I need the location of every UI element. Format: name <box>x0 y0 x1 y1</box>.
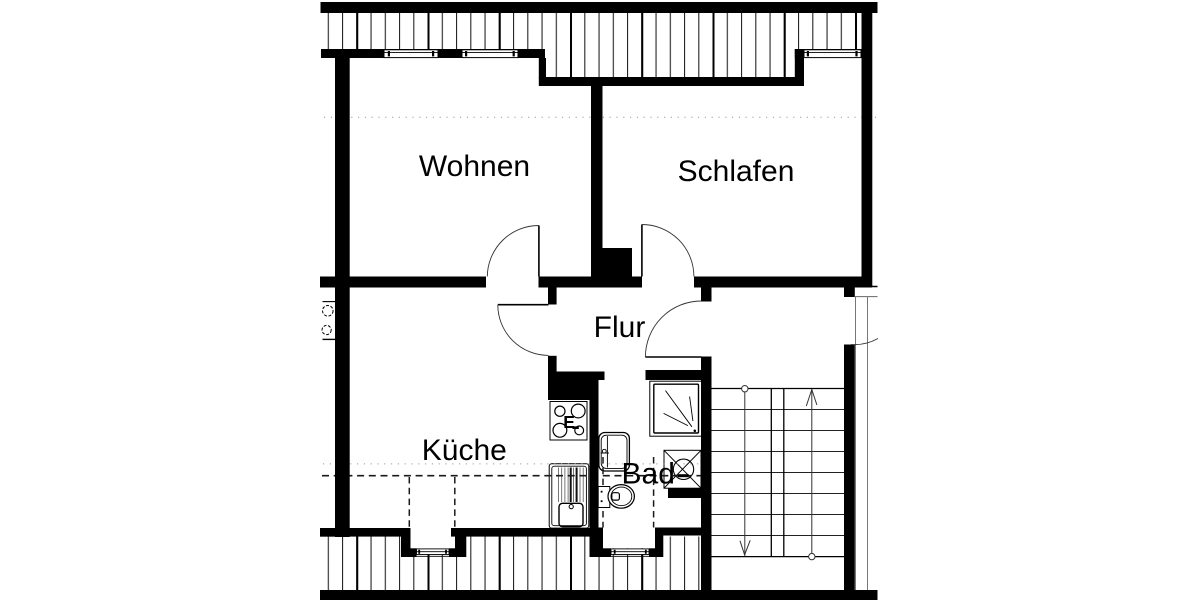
svg-text:Wohnen: Wohnen <box>419 150 530 183</box>
svg-text:E: E <box>563 412 575 432</box>
svg-text:Küche: Küche <box>422 434 507 467</box>
svg-text:Schlafen: Schlafen <box>678 155 795 188</box>
svg-text:Bad: Bad <box>622 458 675 491</box>
svg-text:Flur: Flur <box>594 311 646 344</box>
